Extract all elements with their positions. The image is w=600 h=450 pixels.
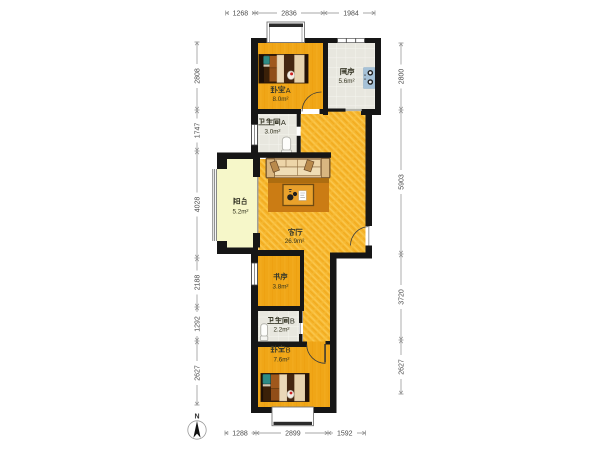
svg-text:1747: 1747 (195, 123, 202, 139)
svg-text:2627: 2627 (399, 359, 406, 375)
svg-text:A: A (281, 118, 286, 127)
svg-text:1288: 1288 (232, 431, 248, 438)
svg-text:2627: 2627 (195, 365, 202, 381)
svg-text:7.6m²: 7.6m² (273, 357, 289, 364)
svg-text:1268: 1268 (233, 11, 249, 18)
svg-text:8.0m²: 8.0m² (272, 96, 288, 103)
svg-text:5903: 5903 (399, 174, 406, 190)
svg-text:A: A (286, 86, 291, 95)
svg-text:4028: 4028 (195, 197, 202, 213)
svg-text:2188: 2188 (195, 275, 202, 291)
svg-text:5.6m²: 5.6m² (339, 78, 355, 85)
svg-text:3720: 3720 (399, 289, 406, 305)
svg-text:2808: 2808 (195, 68, 202, 84)
svg-text:2899: 2899 (285, 431, 301, 438)
svg-text:B: B (286, 345, 291, 354)
svg-text:1592: 1592 (337, 431, 353, 438)
svg-text:2.2m²: 2.2m² (273, 327, 289, 334)
svg-text:2800: 2800 (399, 69, 406, 85)
svg-text:26.9m²: 26.9m² (285, 238, 305, 245)
svg-text:5.2m²: 5.2m² (232, 209, 248, 216)
svg-text:1984: 1984 (343, 11, 359, 18)
svg-text:N: N (194, 414, 199, 421)
svg-text:3.0m²: 3.0m² (264, 129, 280, 136)
svg-text:2836: 2836 (281, 11, 297, 18)
svg-text:1292: 1292 (195, 316, 202, 332)
svg-text:B: B (290, 317, 295, 326)
svg-text:3.8m²: 3.8m² (272, 284, 288, 291)
